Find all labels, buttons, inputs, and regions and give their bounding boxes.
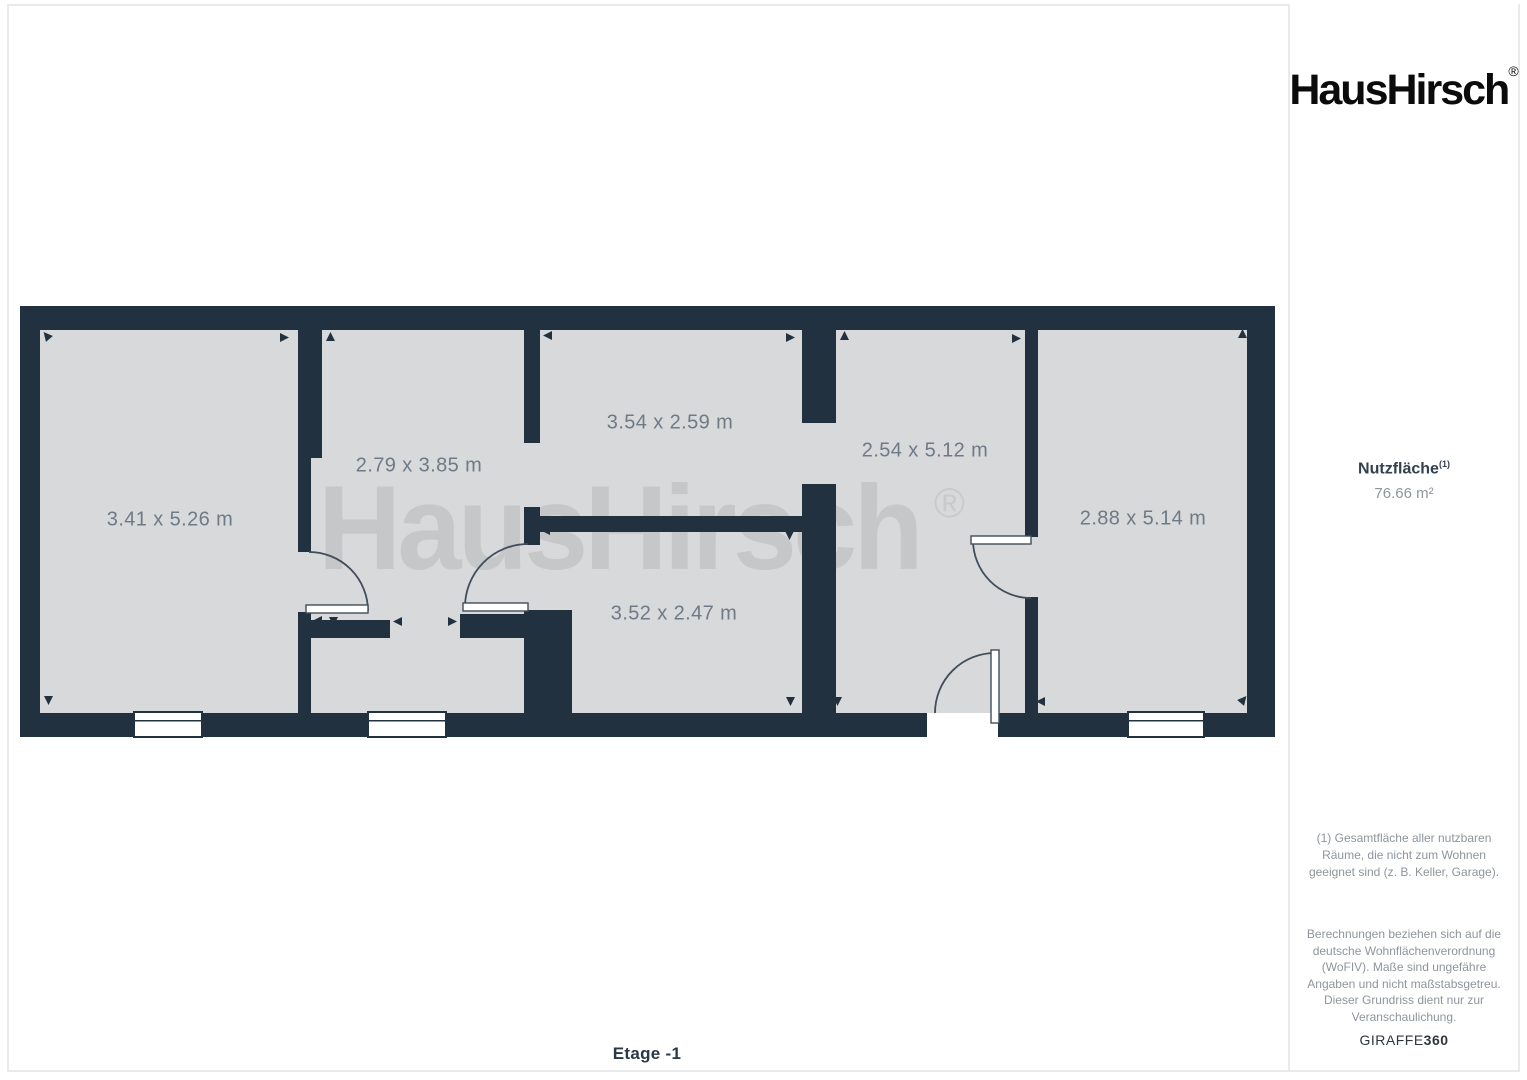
floor-label: Etage -1: [613, 1044, 682, 1064]
room-label: 2.79 x 3.85 m: [356, 455, 482, 478]
footnote-text: (1) Gesamtfläche aller nutzbaren Räume, …: [1300, 830, 1508, 881]
provider-name-regular: GIRAFFE: [1359, 1032, 1423, 1048]
measure-arrow-icon: [1238, 329, 1247, 338]
measure-arrow-icon: [1012, 334, 1021, 343]
door-leaf: [306, 605, 368, 613]
measure-arrow-icon: [44, 696, 53, 705]
measure-arrow-icon: [40, 329, 53, 342]
info-sidebar: HausHirsch® Nutzfläche(1) 76.66 m² (1) G…: [1290, 4, 1518, 1070]
measure-arrow-icon: [329, 617, 338, 626]
door-arc: [309, 552, 368, 611]
measure-arrow-icon: [326, 332, 335, 341]
door-leaf: [463, 603, 528, 611]
door-leaf: [991, 650, 999, 723]
area-value: 76.66 m²: [1374, 485, 1433, 502]
measure-arrow-icon: [786, 333, 795, 342]
measure-arrow-icon: [840, 331, 849, 340]
door-arc: [973, 540, 1031, 598]
room-label: 2.88 x 5.14 m: [1080, 508, 1206, 531]
room-label: 3.52 x 2.47 m: [611, 603, 737, 626]
door-swing-layer: [0, 0, 1290, 1080]
disclaimer-text: Berechnungen beziehen sich auf die deuts…: [1297, 926, 1511, 1025]
measure-arrow-icon: [448, 617, 457, 626]
room-label: 3.54 x 2.59 m: [607, 412, 733, 435]
room-label: 2.54 x 5.12 m: [862, 440, 988, 463]
brand-logo: HausHirsch®: [1289, 63, 1518, 115]
area-heading: Nutzfläche(1): [1358, 459, 1450, 478]
provider-credit: GIRAFFE360: [1359, 1032, 1448, 1048]
area-heading-label: Nutzfläche: [1358, 460, 1439, 477]
brand-logo-text: HausHirsch: [1289, 66, 1508, 114]
room-label: 3.41 x 5.26 m: [107, 509, 233, 532]
measure-arrow-icon: [541, 526, 550, 535]
registered-trademark-icon: ®: [1508, 63, 1518, 79]
door-arc: [935, 653, 995, 713]
measure-arrow-icon: [280, 333, 289, 342]
measure-arrow-icon: [833, 697, 842, 706]
provider-name-bold: 360: [1424, 1032, 1449, 1048]
measure-arrow-icon: [1237, 693, 1250, 706]
floorplan-canvas: HausHirsch ®: [0, 0, 1290, 1080]
measure-arrow-icon: [313, 616, 322, 625]
measure-arrow-icon: [1036, 697, 1045, 706]
measure-arrow-icon: [393, 617, 402, 626]
door-arc: [465, 544, 528, 607]
door-leaf: [971, 536, 1031, 544]
measure-arrow-icon: [785, 531, 794, 540]
measure-arrow-icon: [543, 331, 552, 340]
measure-arrow-icon: [786, 697, 795, 706]
floorplan-page: HausHirsch ®: [0, 0, 1527, 1080]
area-heading-footref: (1): [1439, 459, 1450, 469]
